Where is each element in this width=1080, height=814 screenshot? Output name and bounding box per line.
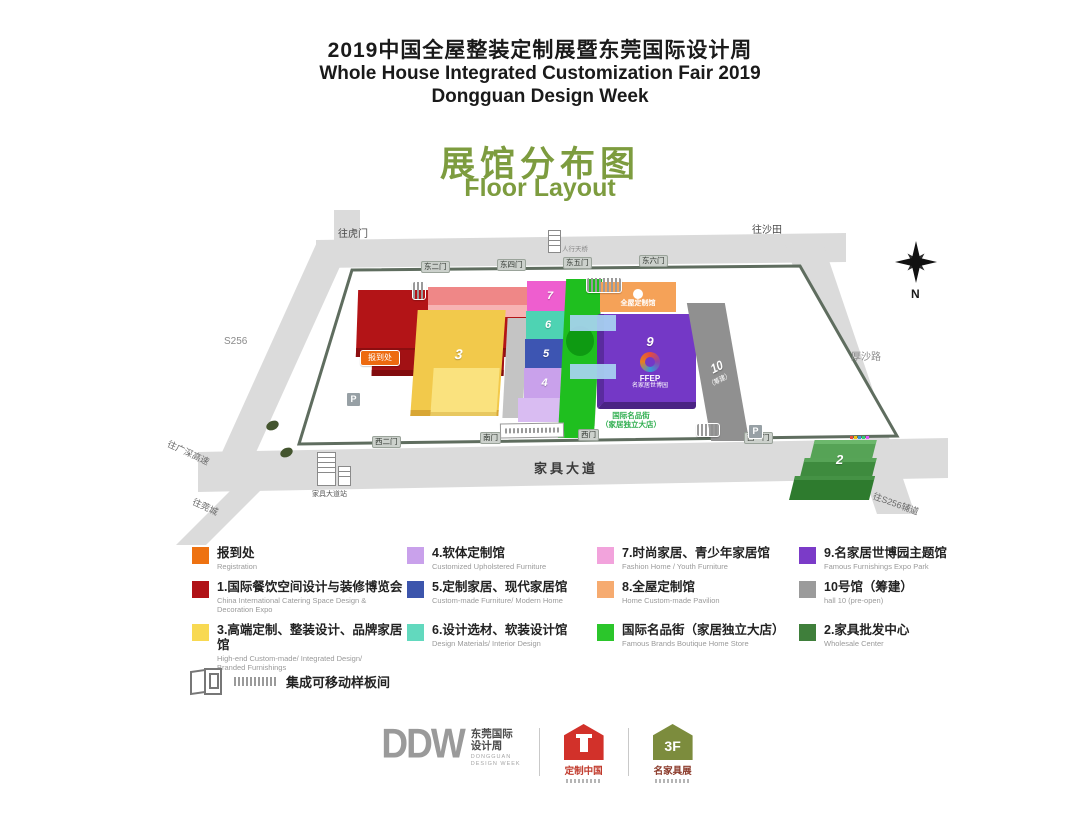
legend-swatch	[597, 624, 614, 641]
hall-9-number: 9	[646, 334, 653, 349]
legend-item-hall-2: 2.家具批发中心Wholesale Center	[799, 623, 999, 672]
legend-item-hall-1: 1.国际餐饮空间设计与装修博览会China International Cate…	[192, 580, 407, 614]
compass-n-label: N	[911, 287, 920, 301]
footbridge-icon	[548, 230, 561, 253]
hall-9-logo-text: FFEP	[640, 374, 660, 383]
info-badge-northeast	[586, 277, 622, 293]
movable-showroom-logo-icon	[190, 668, 224, 694]
3f-mark: 3F	[664, 739, 680, 753]
home-china-label: 定制中国	[558, 763, 610, 777]
legend-item-registration: 报到处Registration	[192, 546, 407, 571]
notice-sign-box	[500, 422, 564, 438]
footbridge-label: 人行天桥	[562, 243, 588, 253]
movable-showroom-logo-glyphs	[234, 677, 276, 686]
road-label-housha: 厚沙路	[851, 348, 881, 363]
ddw-logo-en2: DESIGN WEEK	[471, 761, 521, 768]
hall-8-label: 全屋定制馆	[621, 299, 656, 308]
hall-7-number: 7	[547, 290, 553, 302]
sky-walkway-lower	[570, 364, 616, 379]
legend-swatch	[799, 581, 816, 598]
bus-station-icon-small	[338, 466, 351, 486]
home-china-caption-greek	[566, 779, 602, 783]
hall-8-logo-dot	[633, 289, 643, 299]
info-badge-south	[696, 423, 720, 437]
legend-swatch	[597, 547, 614, 564]
movable-showroom-row: 集成可移动样板间	[190, 668, 390, 694]
boutique-street-caption: 国际名品街 （家居独立大店）	[596, 411, 666, 429]
hall-6-number: 6	[545, 319, 551, 331]
legend-item-hall-5: 5.定制家居、现代家居馆Custom-made Furniture/ Moder…	[407, 580, 597, 614]
legend: 报到处Registration 4.软体定制馆Customized Uphols…	[192, 546, 999, 672]
hall-3-annex	[430, 368, 499, 416]
gate-south: 南门	[480, 432, 501, 444]
hall-3-number: 3	[454, 346, 463, 362]
hall-4-annex	[518, 398, 564, 422]
legend-item-hall-7: 7.时尚家居、青少年家居馆Fashion Home / Youth Furnit…	[597, 546, 799, 571]
ddw-logo: DDW 东莞国际 设计周 DONGGUAN DESIGN WEEK	[381, 724, 520, 768]
hall-2-flags-decor	[850, 436, 869, 439]
ddw-logo-mark: DDW	[381, 722, 463, 767]
parking-badge-west: P	[346, 392, 361, 407]
famous-furniture-fair-logo: 3F 名家具展	[647, 724, 699, 783]
legend-item-hall-8: 8.全屋定制馆Home Custom-made Pavilion	[597, 580, 799, 614]
ddw-logo-en1: DONGGUAN	[471, 754, 521, 761]
legend-item-hall-4: 4.软体定制馆Customized Upholstered Furniture	[407, 546, 597, 571]
hall-10-subtext: （筹建）	[706, 369, 732, 390]
legend-swatch	[192, 547, 209, 564]
legend-swatch	[192, 624, 209, 641]
info-badge-north	[412, 281, 426, 300]
parking-badge-south: P	[748, 424, 763, 439]
gate-west: 西门	[578, 429, 599, 441]
road-label-to-humen: 往虎门	[338, 225, 368, 240]
bus-station-label: 家具大道站	[312, 489, 347, 499]
legend-swatch	[799, 547, 816, 564]
footer-divider	[539, 728, 540, 776]
legend-swatch	[597, 581, 614, 598]
road-label-furniture-avenue: 家具大道	[534, 458, 598, 477]
famous-furniture-fair-label: 名家具展	[647, 763, 699, 777]
home-china-logo: 定制中国	[558, 724, 610, 783]
compass-icon	[895, 241, 937, 283]
hall-4-building: 4	[524, 368, 565, 398]
road-to-guancheng	[176, 487, 264, 545]
movable-showroom-label: 集成可移动样板间	[286, 672, 390, 691]
bus-station-icon-large	[317, 452, 336, 486]
road-label-s256: S256	[224, 336, 247, 347]
famous-furniture-fair-caption-greek	[655, 779, 691, 783]
legend-swatch	[407, 581, 424, 598]
sky-walkway-upper	[570, 315, 616, 331]
gate-east-2: 东二门	[421, 261, 450, 273]
hall-5-number: 5	[543, 348, 549, 360]
hall-2-number: 2	[836, 452, 843, 467]
footer-logos: DDW 东莞国际 设计周 DONGGUAN DESIGN WEEK 定制中国 3…	[0, 724, 1080, 783]
green-house-icon: 3F	[653, 724, 693, 760]
gate-east-4: 东四门	[497, 259, 526, 271]
gate-west-2: 西二门	[372, 436, 401, 448]
legend-item-boutique-street: 国际名品街（家居独立大店）Famous Brands Boutique Home…	[597, 623, 799, 672]
legend-item-hall-6: 6.设计选材、软装设计馆Design Materials/ Interior D…	[407, 623, 597, 672]
hall-9-ffep-ring-icon	[640, 352, 660, 372]
legend-swatch	[799, 624, 816, 641]
legend-swatch	[407, 547, 424, 564]
gate-east-6: 东六门	[639, 255, 668, 267]
legend-item-hall-9: 9.名家居世博园主题馆Famous Furnishings Expo Park	[799, 546, 999, 571]
footer-divider	[628, 728, 629, 776]
hall-9-logo-subtext: 名家居世博园	[632, 383, 668, 390]
legend-swatch	[192, 581, 209, 598]
red-house-icon	[564, 724, 604, 760]
legend-item-hall-10: 10号馆（筹建）hall 10 (pre-open)	[799, 580, 999, 614]
registration-badge: 报到处	[360, 350, 400, 366]
legend-swatch	[407, 624, 424, 641]
legend-item-hall-3: 3.高端定制、整装设计、品牌家居馆High-end Custom-made/ I…	[192, 623, 407, 672]
hall-4-number: 4	[541, 377, 547, 389]
ddw-logo-cn1: 东莞国际	[471, 728, 521, 740]
road-label-to-shatian: 往沙田	[752, 221, 782, 236]
gate-east-5: 东五门	[563, 257, 592, 269]
poster-page: 2019中国全屋整装定制展暨东莞国际设计周 Whole House Integr…	[0, 0, 1080, 814]
ddw-logo-cn2: 设计周	[471, 740, 521, 752]
hall-2-slab-bottom	[789, 476, 875, 500]
